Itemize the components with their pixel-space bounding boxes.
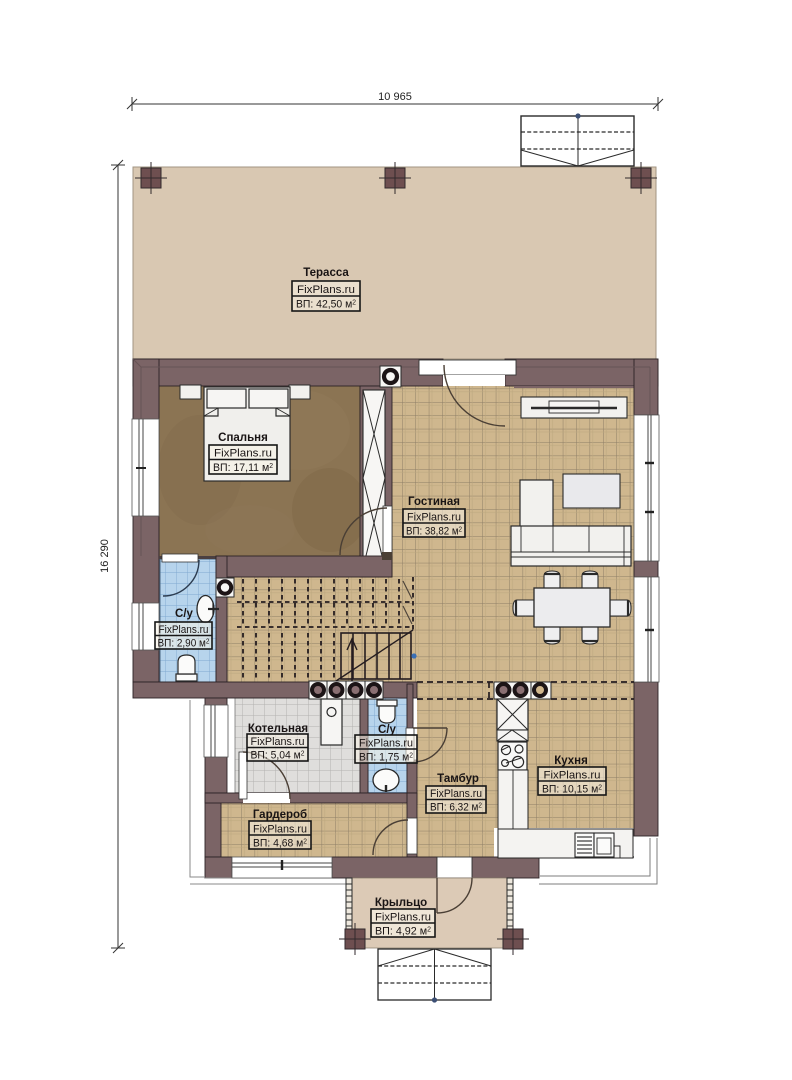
svg-text:Тамбур: Тамбур xyxy=(437,773,479,785)
svg-text:FixPlans.ru: FixPlans.ru xyxy=(375,912,431,924)
svg-text:Спальня: Спальня xyxy=(218,432,268,444)
svg-text:ВП: 1,75 м2: ВП: 1,75 м2 xyxy=(359,752,413,764)
svg-text:ВП: 2,90 м2: ВП: 2,90 м2 xyxy=(158,638,210,650)
svg-text:FixPlans.ru: FixPlans.ru xyxy=(297,284,355,296)
svg-text:ВП: 4,68 м2: ВП: 4,68 м2 xyxy=(253,838,307,850)
svg-text:ВП: 38,82 м2: ВП: 38,82 м2 xyxy=(406,526,462,538)
svg-text:ВП: 5,04 м2: ВП: 5,04 м2 xyxy=(251,750,305,762)
svg-text:FixPlans.ru: FixPlans.ru xyxy=(251,736,305,748)
svg-text:ВП: 6,32 м2: ВП: 6,32 м2 xyxy=(430,802,482,814)
svg-text:FixPlans.ru: FixPlans.ru xyxy=(544,770,601,782)
svg-text:Терасса: Терасса xyxy=(303,267,349,279)
svg-text:Гостиная: Гостиная xyxy=(408,496,460,508)
svg-text:Гардероб: Гардероб xyxy=(253,809,307,821)
svg-text:10 965: 10 965 xyxy=(378,91,412,103)
svg-text:FixPlans.ru: FixPlans.ru xyxy=(430,788,482,800)
svg-text:FixPlans.ru: FixPlans.ru xyxy=(159,624,209,636)
svg-text:Кухня: Кухня xyxy=(554,755,588,767)
svg-text:FixPlans.ru: FixPlans.ru xyxy=(407,512,461,524)
svg-text:ВП: 10,15 м2: ВП: 10,15 м2 xyxy=(542,784,602,796)
svg-text:ВП: 17,11 м2: ВП: 17,11 м2 xyxy=(213,462,273,474)
svg-text:ВП: 42,50 м2: ВП: 42,50 м2 xyxy=(296,299,356,311)
svg-text:FixPlans.ru: FixPlans.ru xyxy=(253,824,307,836)
svg-text:FixPlans.ru: FixPlans.ru xyxy=(214,448,272,460)
svg-text:ВП: 4,92 м2: ВП: 4,92 м2 xyxy=(375,926,431,938)
svg-text:FixPlans.ru: FixPlans.ru xyxy=(359,738,413,750)
svg-text:16 290: 16 290 xyxy=(99,539,111,573)
svg-text:Крыльцо: Крыльцо xyxy=(375,897,427,909)
svg-text:С/у: С/у xyxy=(175,608,194,620)
